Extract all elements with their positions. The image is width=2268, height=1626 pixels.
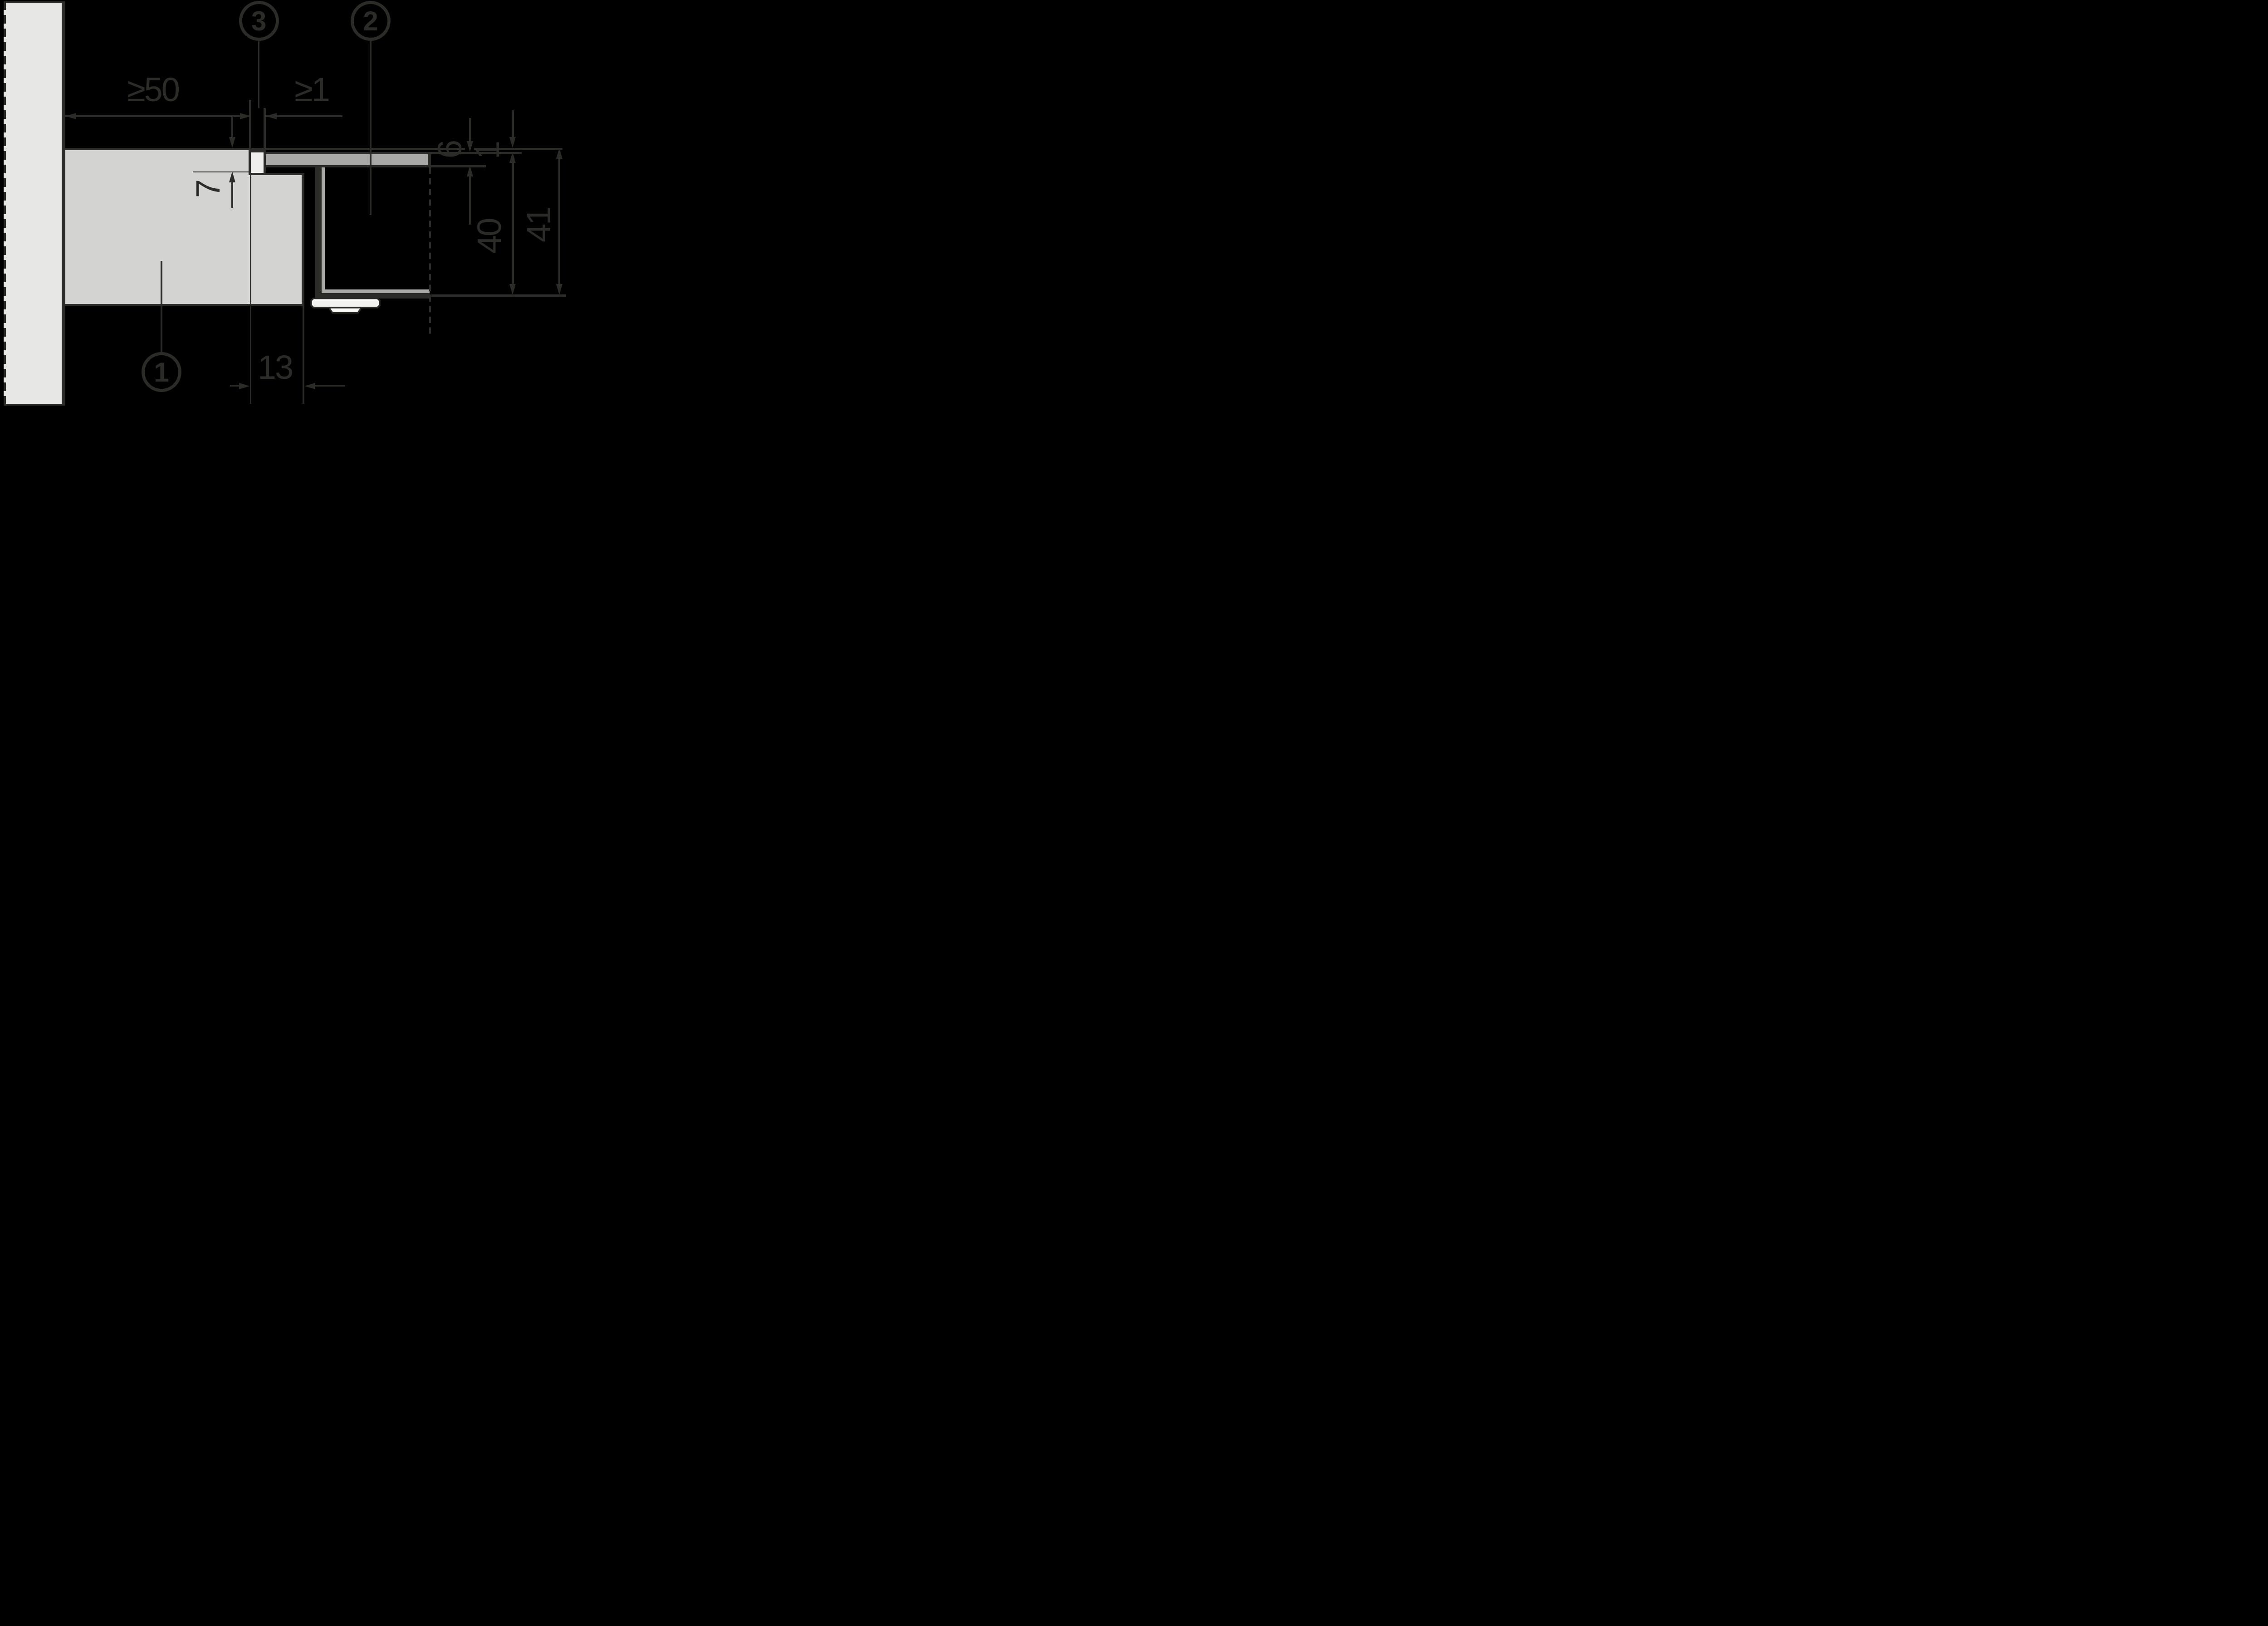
countertop-lower-fill [65, 173, 302, 304]
bracket-foot [330, 308, 361, 313]
bracket-body [311, 299, 380, 308]
dim-outer-height-label: 41 [522, 208, 556, 242]
callout-number-countertop: 1 [154, 357, 169, 388]
appliance-side-inner-face [322, 167, 325, 294]
callout-number-front-panel: 2 [363, 5, 378, 37]
dim-notch-width-label: 13 [258, 351, 292, 384]
dim-top-gap-shaft [512, 110, 514, 137]
dim-notch-width-arrow-right [304, 383, 315, 389]
countertop-upper-fill [65, 150, 249, 173]
callout-number-seal-strip: 3 [251, 5, 266, 37]
wall-face-line [62, 1, 65, 406]
dim-wall-clearance-line [65, 115, 251, 118]
dim-outer-height-shaft [558, 159, 561, 284]
dim-notch-width-ext-left [250, 173, 252, 404]
countertop-bottom-outline [65, 304, 304, 307]
dim-panel-thickness-label: 6 [433, 141, 467, 158]
front-panel [266, 154, 427, 165]
callout-leader-seal-strip [258, 41, 260, 108]
dim-notch-depth-arrow-up [229, 171, 235, 182]
wall-top-edge [4, 1, 62, 3]
dim-inner-height-label: 40 [473, 219, 506, 254]
dim-notch-depth-label: 7 [191, 181, 225, 198]
wall [4, 1, 62, 406]
countertop-step-floor-outline [251, 173, 303, 176]
dim-front-gap-label: ≥1 [294, 73, 329, 107]
callout-circle-countertop: 1 [142, 352, 181, 392]
ext-line-step-floor [193, 171, 251, 173]
mounting-bracket [308, 297, 384, 315]
callout-leader-front-panel [370, 41, 371, 215]
niche-front-dashed-line [429, 167, 431, 335]
front-panel-bottom-outline [264, 165, 431, 167]
dim-notch-width-ext-right [303, 306, 304, 404]
ext-line-cutout-edge [249, 100, 251, 148]
niche-bottom-reference-line [430, 294, 566, 297]
dim-notch-depth-arrow-down [229, 137, 235, 148]
callout-circle-front-panel: 2 [351, 1, 391, 41]
dim-outer-height-arrow-down [556, 284, 562, 295]
dim-front-gap-line [266, 115, 343, 118]
dim-inner-height-arrow-down [509, 284, 516, 295]
seal-strip [251, 152, 264, 172]
dim-inner-height-arrow-up [509, 152, 516, 163]
dim-notch-depth-shaft-bottom [231, 182, 234, 208]
dim-panel-thickness-shaft-top [469, 118, 471, 141]
countertop-right-edge [302, 173, 304, 307]
dim-outer-height-arrow-up [556, 148, 562, 159]
dim-notch-width-shaft-left [230, 385, 240, 387]
dim-panel-thickness-arrow-up [467, 166, 473, 176]
dim-panel-thickness-shaft-bottom [469, 176, 471, 225]
front-panel-right-cap [428, 152, 431, 167]
dim-notch-depth-shaft-top [231, 116, 234, 137]
dim-inner-height-shaft [512, 163, 514, 284]
callout-leader-countertop [161, 261, 162, 352]
dim-notch-width-shaft-right [315, 385, 345, 387]
appliance-bottom-inner-face [325, 289, 430, 293]
dim-top-gap-label: 1 [471, 142, 504, 159]
dim-notch-width-arrow-left [239, 383, 250, 389]
callout-circle-seal-strip: 3 [239, 1, 279, 41]
dim-wall-clearance-label: ≥50 [127, 73, 179, 107]
ext-line-panel-bottom [431, 165, 486, 167]
wall-break-dashed-edge [4, 1, 6, 406]
appliance-side-outline [315, 165, 322, 299]
dim-wall-clearance-arrow-left [65, 113, 76, 119]
wall-bottom-edge [4, 404, 62, 406]
installation-diagram: ≥50 ≥1 7 13 6 1 40 41 3 2 1 [0, 0, 567, 406]
dim-top-gap-arrow-down [509, 137, 516, 148]
